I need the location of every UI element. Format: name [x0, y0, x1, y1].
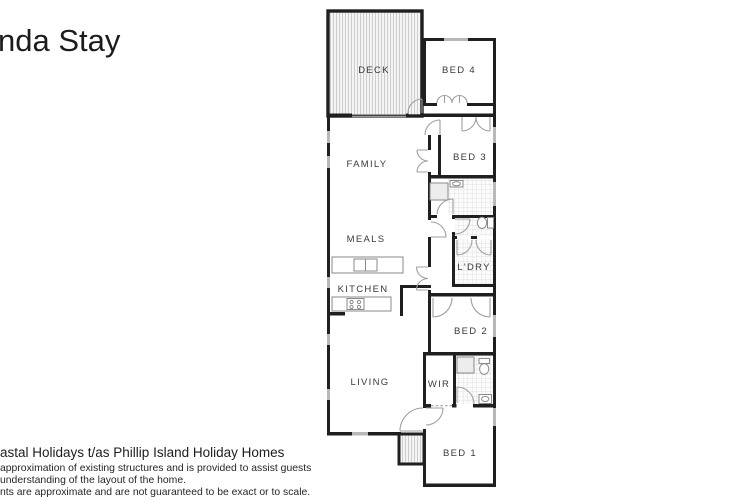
room-label-meals: MEALS: [347, 234, 386, 245]
footer-disclaimer: astal Holidays t/as Phillip Island Holid…: [0, 445, 340, 499]
room-label-ldry: L'DRY: [457, 262, 490, 273]
deck-floor: [328, 11, 422, 116]
bathroom-vanity: [450, 181, 463, 188]
room-label-wir: WIR: [428, 379, 450, 390]
disclaimer-line-1: approximation of existing structures and…: [0, 463, 340, 475]
room-label-living: LIVING: [351, 377, 390, 388]
ensuite-basin: [479, 395, 492, 404]
room-label-kitchen: KITCHEN: [338, 284, 389, 295]
ensuite-toilet: [479, 359, 490, 375]
entry-porch: [399, 434, 424, 464]
company-name: astal Holidays t/as Phillip Island Holid…: [0, 445, 340, 460]
bathroom-shower: [430, 183, 448, 200]
room-label-bed1: BED 1: [443, 448, 477, 459]
floor-plan-page: nda Stay: [0, 0, 750, 500]
disclaimer-line-3: nts are approximate and are not guarante…: [0, 487, 340, 499]
kitchen-island-sink: [332, 257, 403, 273]
floor-plan-image: DECK BED 4 FAMILY BED 3 MEALS KITCHEN L'…: [0, 0, 750, 500]
ensuite-shower: [457, 357, 474, 373]
room-label-bed4: BED 4: [442, 65, 476, 76]
cooktop-bench: [332, 297, 391, 311]
disclaimer-line-2: understanding of the layout of the home.: [0, 475, 340, 487]
room-label-bed3: BED 3: [453, 152, 487, 163]
room-label-deck: DECK: [358, 65, 390, 76]
room-label-bed2: BED 2: [454, 326, 488, 337]
room-label-family: FAMILY: [347, 159, 388, 170]
wc-toilet: [477, 217, 493, 228]
